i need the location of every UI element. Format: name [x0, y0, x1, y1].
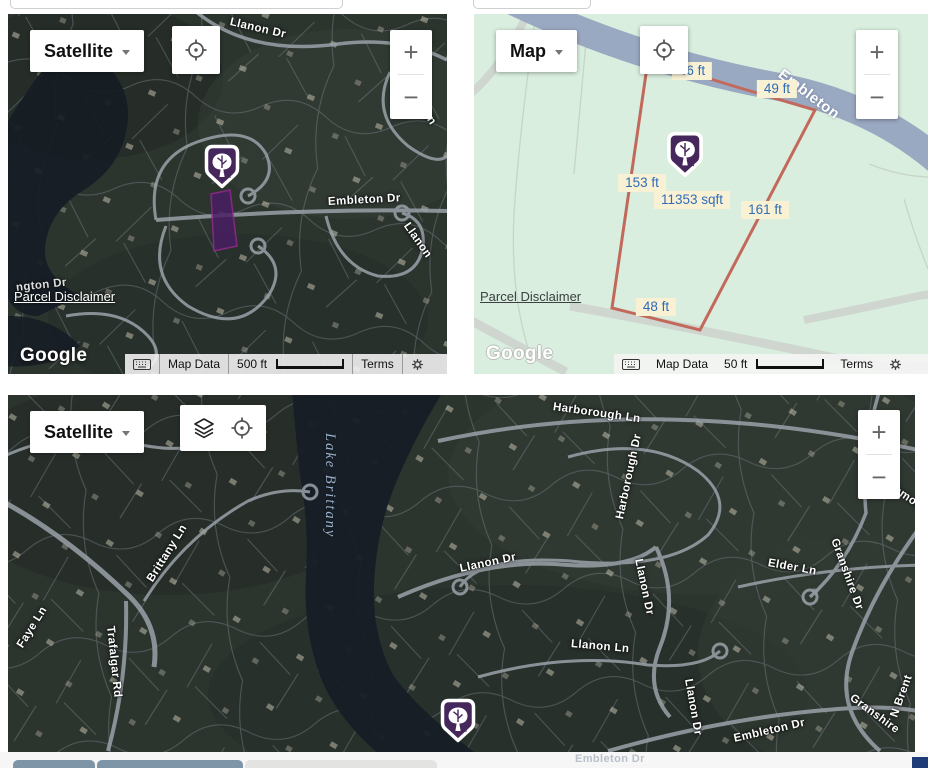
terms-link[interactable]: Terms: [832, 354, 881, 374]
map-type-label: Satellite: [44, 422, 113, 443]
report-error-button[interactable]: [881, 354, 910, 374]
map-data-link[interactable]: Map Data: [648, 354, 716, 374]
zoom-control: + −: [856, 30, 898, 119]
scale-control: 500 ft: [228, 354, 352, 374]
my-location-button[interactable]: [640, 26, 688, 74]
gear-icon: [889, 358, 902, 371]
scale-bar: [276, 359, 344, 369]
map-type-button[interactable]: Satellite: [30, 30, 144, 72]
cutoff-element-top-left[interactable]: [10, 0, 343, 9]
keyboard-icon: [622, 359, 640, 370]
lake-label: Lake Brittany: [321, 433, 338, 538]
map-type-button[interactable]: Map: [496, 30, 577, 72]
zoom-out-button[interactable]: −: [390, 75, 432, 119]
bottom-tab-3[interactable]: [245, 760, 437, 768]
measurement-chip: 153 ft: [618, 174, 666, 192]
chevron-down-icon: [555, 50, 563, 55]
page: Llanon Dr Llanon Embleton Dr Llanon ngto…: [0, 0, 928, 768]
zoom-out-button[interactable]: −: [856, 75, 898, 119]
map-attribution-bar: Map Data 50 ft Terms: [614, 354, 928, 374]
property-marker-pin[interactable]: [662, 129, 708, 188]
map-type-label: Map: [510, 41, 546, 62]
zoom-in-button[interactable]: +: [858, 410, 900, 454]
parcel-disclaimer-link[interactable]: Parcel Disclaimer: [480, 289, 581, 304]
scale-control: 50 ft: [716, 354, 832, 374]
zoom-out-button[interactable]: −: [858, 455, 900, 499]
chevron-down-icon: [122, 50, 130, 55]
measurement-chip: 49 ft: [757, 80, 797, 98]
scale-bar: [756, 359, 824, 369]
terms-link[interactable]: Terms: [352, 354, 402, 374]
gear-icon: [411, 358, 424, 371]
tree-pin-icon: [200, 142, 244, 194]
scale-label: 500 ft: [237, 357, 267, 371]
google-logo[interactable]: Google: [486, 343, 553, 365]
map-canvas-satellite-parcel[interactable]: Llanon Dr Llanon Embleton Dr Llanon ngto…: [8, 14, 447, 374]
zoom-in-button[interactable]: +: [856, 30, 898, 74]
map-tools-group: [180, 405, 266, 451]
chevron-down-icon: [122, 431, 130, 436]
zoom-in-button[interactable]: +: [390, 30, 432, 74]
keyboard-shortcuts-button[interactable]: [125, 354, 159, 374]
google-logo[interactable]: Google: [20, 345, 87, 367]
zoom-control: + −: [858, 410, 900, 499]
property-marker-pin[interactable]: [436, 696, 480, 752]
map-canvas-satellite-area[interactable]: Lake Brittany Harborough Ln Harborough D…: [8, 395, 915, 752]
zoom-control: + −: [390, 30, 432, 119]
map-type-label: Satellite: [44, 41, 113, 62]
measurement-chip: 161 ft: [741, 201, 789, 219]
layers-icon[interactable]: [192, 416, 216, 440]
cutoff-blue-element: [912, 757, 928, 768]
map-data-link[interactable]: Map Data: [159, 354, 228, 374]
target-locate-icon: [652, 38, 676, 62]
scale-label: 50 ft: [724, 357, 747, 371]
bottom-tab-1[interactable]: [13, 760, 95, 768]
measurement-chip: 48 ft: [636, 298, 676, 316]
target-locate-icon[interactable]: [230, 416, 254, 440]
tree-pin-icon: [436, 696, 480, 748]
map-type-button[interactable]: Satellite: [30, 411, 144, 453]
map-attribution-bar: Map Data 500 ft Terms: [125, 354, 447, 374]
keyboard-icon: [133, 359, 151, 370]
lot-area-chip: 11353 sqft: [654, 191, 730, 209]
bottom-tab-2[interactable]: [97, 760, 243, 768]
report-error-button[interactable]: [402, 354, 432, 374]
target-locate-icon: [184, 38, 208, 62]
parcel-disclaimer-link[interactable]: Parcel Disclaimer: [14, 289, 115, 304]
cutoff-element-top-right[interactable]: [473, 0, 591, 9]
ghost-street-label: Embleton Dr: [575, 753, 645, 765]
keyboard-shortcuts-button[interactable]: [614, 354, 648, 374]
property-marker-pin[interactable]: [200, 142, 244, 199]
tree-pin-icon: [662, 129, 708, 183]
map-canvas-parcel-dimensions[interactable]: Embleton 46 ft 49 ft 153 ft 11353 sqft 1…: [474, 14, 928, 374]
my-location-button[interactable]: [172, 26, 220, 74]
